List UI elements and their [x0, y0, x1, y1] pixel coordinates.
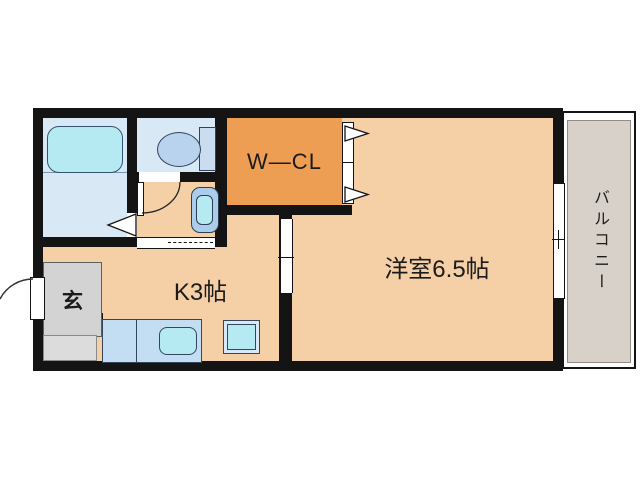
- western-room-label: 洋室6.5帖: [352, 249, 522, 284]
- kitchen-sliding-door: [280, 219, 293, 293]
- window-tick-v: [558, 230, 559, 249]
- counter-divider: [136, 320, 137, 362]
- kitchen-counter-icon: [102, 319, 202, 363]
- washroom-door-leaf: [137, 182, 144, 216]
- kitchen-sink-icon: [159, 327, 197, 355]
- balcony-label: バルコニー: [587, 189, 611, 294]
- washroom-sliding-partition: [137, 237, 215, 249]
- sliding-door-tick: [278, 257, 294, 258]
- genkan-step: [43, 335, 97, 361]
- stove-icon: [223, 320, 260, 354]
- toilet-bowl-icon: [157, 132, 201, 167]
- toilet-tank-icon: [199, 127, 216, 171]
- washroom-door-opening: [139, 172, 180, 182]
- walk-in-closet: W—CL: [227, 118, 342, 205]
- genkan-label: 玄: [62, 285, 83, 315]
- bathtub-icon: [47, 126, 123, 173]
- balcony: バルコニー: [567, 120, 631, 363]
- kitchen-label: K3帖: [148, 272, 253, 307]
- washroom-partition-dashed-line: [168, 242, 213, 243]
- washbasin-icon: [191, 187, 219, 233]
- stove-inner-icon: [227, 324, 256, 350]
- bathroom-door-opening: [127, 213, 137, 237]
- entry-door-leaf: [30, 277, 45, 320]
- washbasin-bowl-icon: [196, 195, 213, 225]
- entry-door-arc: [0, 279, 33, 299]
- closet-door: [342, 122, 354, 204]
- closet-door-divider: [343, 162, 353, 163]
- genkan: 玄: [43, 262, 102, 337]
- wall-bath-bottom: [33, 237, 137, 247]
- walk-in-closet-label: W—CL: [247, 149, 322, 175]
- floor-plan: バルコニー W—CL 玄: [0, 0, 640, 480]
- balcony-window: [553, 183, 565, 299]
